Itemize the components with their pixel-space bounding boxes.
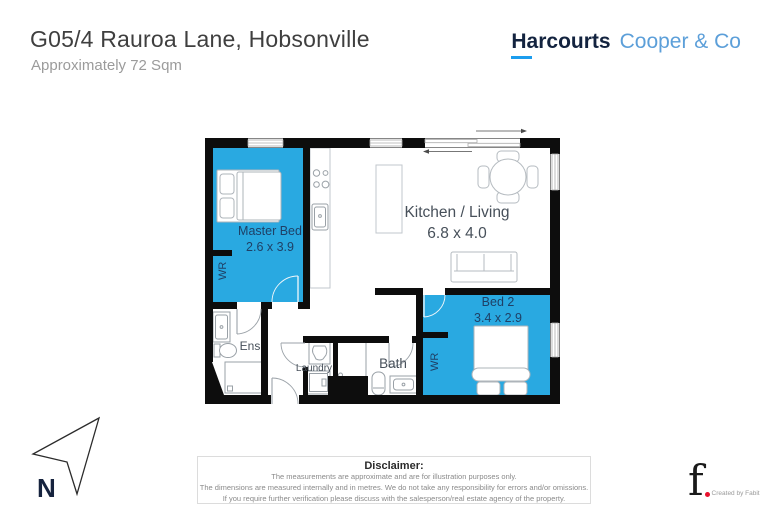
master-bed-label: Master Bed: [238, 224, 302, 238]
ens-toilet-icon: [214, 344, 237, 358]
washing-machine-icon: [307, 371, 330, 394]
page-subtitle: Approximately 72 Sqm: [31, 57, 182, 74]
dining-set: [478, 151, 538, 203]
bath-shower: [336, 340, 366, 380]
bed2-label: Bed 2: [482, 295, 515, 309]
ens-label: Ens: [240, 339, 261, 353]
ens-door: [237, 309, 261, 334]
kitchen-living-dims: 6.8 x 4.0: [427, 225, 487, 242]
bath-label: Bath: [379, 356, 407, 371]
laundry-label: Laundry: [296, 363, 332, 374]
floorplan-drawing: Master Bed 2.6 x 3.9 Kitchen / Living 6.…: [195, 118, 575, 418]
credit-fabit: f Created by Fabit: [688, 461, 760, 501]
sofa: [451, 252, 517, 282]
disclaimer-line: The measurements are approximate and are…: [198, 472, 590, 483]
credit-caption: Created by Fabit: [712, 490, 760, 497]
brand-cooper-co: Cooper & Co: [620, 30, 741, 54]
fabit-red-dot-icon: [705, 492, 710, 497]
fabit-logo: f: [688, 461, 704, 501]
entry-door: [272, 378, 298, 404]
window-kitchen-top: [370, 139, 402, 148]
window-master-top: [248, 139, 283, 148]
ens-shower: [225, 362, 263, 393]
brand-harcourts-text: Harcourts: [511, 30, 610, 53]
wr-master-label: WR: [217, 262, 229, 280]
disclaimer-line: The dimensions are measured internally a…: [198, 483, 590, 494]
laundry-tub-icon: [309, 342, 330, 364]
kitchen-living-label: Kitchen / Living: [404, 204, 509, 221]
disclaimer-heading: Disclaimer:: [198, 460, 590, 472]
kitchen-island: [376, 165, 402, 233]
master-bed-dims: 2.6 x 3.9: [246, 240, 294, 254]
bath-vanity-icon: [390, 376, 417, 393]
master-bed-furniture: [217, 170, 281, 222]
brand-harcourts: Harcourts: [511, 30, 610, 54]
ens-vanity-icon: [213, 312, 230, 342]
window-living-right: [551, 154, 560, 190]
north-label: N: [37, 473, 56, 503]
floorplan-page: G05/4 Rauroa Lane, Hobsonville Approxima…: [0, 0, 768, 513]
sliding-door: [423, 129, 527, 154]
brand-underline-bar: [511, 56, 532, 60]
north-arrow: N: [25, 410, 115, 510]
kitchen-sink-icon: [312, 204, 328, 230]
disclaimer-box: Disclaimer: The measurements are approxi…: [197, 456, 591, 504]
brand-logo: Harcourts Cooper & Co: [511, 30, 741, 54]
wr-bed2-label: WR: [429, 353, 441, 371]
bath-toilet-icon: [372, 372, 385, 395]
window-bed2-right: [551, 323, 560, 357]
page-title: G05/4 Rauroa Lane, Hobsonville: [30, 26, 370, 53]
bed2-dims: 3.4 x 2.9: [474, 311, 522, 325]
disclaimer-line: If you require further verification plea…: [198, 494, 590, 505]
